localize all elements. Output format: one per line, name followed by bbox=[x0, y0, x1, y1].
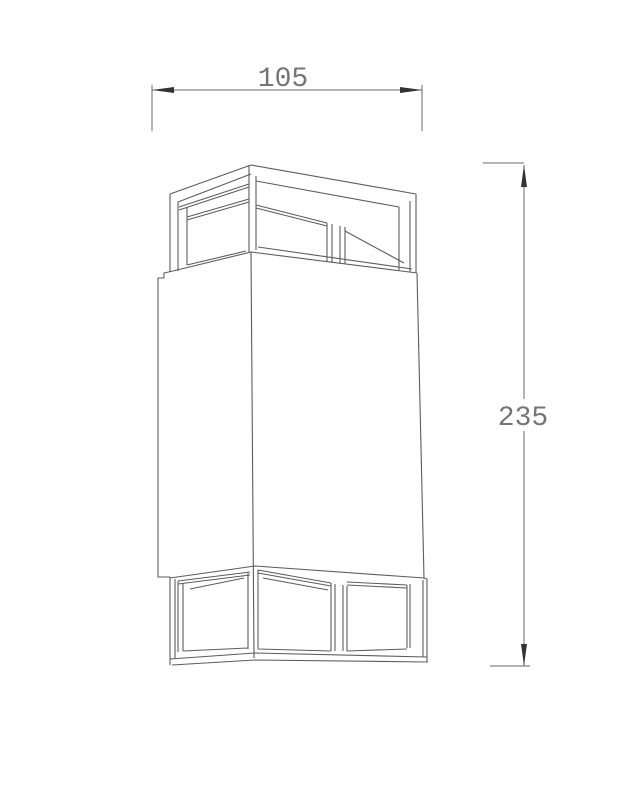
bottom-cage-frame bbox=[170, 577, 428, 665]
body-outline bbox=[158, 252, 424, 658]
height-dimension-label: 235 bbox=[498, 403, 548, 434]
top-cage-left-rails bbox=[179, 184, 249, 220]
body-top-edges bbox=[173, 252, 417, 273]
bottom-cage-left-face bbox=[178, 572, 250, 652]
top-cage-inner-edges bbox=[187, 231, 412, 269]
top-cage-right-rails bbox=[256, 205, 327, 226]
width-arrow-left-icon bbox=[152, 87, 174, 93]
height-arrow-down-icon bbox=[521, 644, 527, 666]
technical-drawing: 105 235 bbox=[0, 0, 630, 800]
height-arrow-up-icon bbox=[521, 165, 527, 187]
width-dimension-label: 105 bbox=[258, 64, 308, 95]
height-dimension: 235 bbox=[483, 163, 548, 666]
width-arrow-right-icon bbox=[400, 87, 422, 93]
lamp-body bbox=[158, 252, 424, 658]
bottom-cage-top-edges bbox=[170, 566, 424, 578]
bottom-cage-right-face bbox=[258, 570, 410, 651]
lamp-bottom-cage bbox=[170, 566, 428, 665]
width-dimension: 105 bbox=[152, 64, 422, 131]
drawing-canvas: 105 235 bbox=[0, 0, 630, 800]
